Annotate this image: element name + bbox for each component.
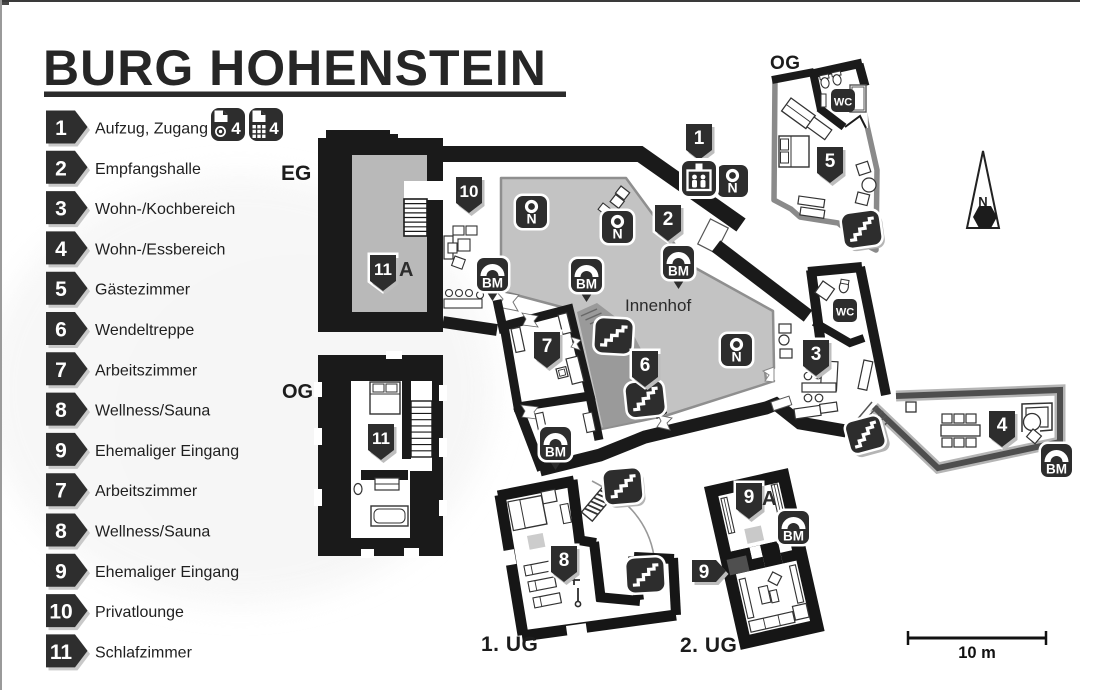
svg-text:4: 4 bbox=[55, 238, 67, 261]
svg-text:1: 1 bbox=[694, 128, 705, 149]
svg-text:4: 4 bbox=[269, 119, 279, 138]
svg-text:5: 5 bbox=[55, 278, 67, 301]
svg-text:A: A bbox=[762, 488, 776, 510]
svg-text:OG: OG bbox=[770, 53, 801, 74]
svg-text:Wellness/Sauna: Wellness/Sauna bbox=[95, 403, 210, 420]
svg-text:Privatlounge: Privatlounge bbox=[95, 604, 184, 621]
svg-text:6: 6 bbox=[640, 355, 651, 376]
svg-text:1. UG: 1. UG bbox=[481, 633, 538, 656]
svg-text:6: 6 bbox=[55, 319, 67, 342]
svg-text:Wohn-/Essbereich: Wohn-/Essbereich bbox=[95, 241, 225, 258]
svg-text:Schlafzimmer: Schlafzimmer bbox=[95, 644, 193, 661]
svg-text:Ehemaliger Eingang: Ehemaliger Eingang bbox=[95, 443, 239, 460]
svg-text:11: 11 bbox=[374, 260, 392, 279]
svg-text:Arbeitszimmer: Arbeitszimmer bbox=[95, 362, 198, 379]
svg-text:4: 4 bbox=[231, 119, 241, 138]
svg-text:4: 4 bbox=[997, 415, 1008, 436]
svg-text:1: 1 bbox=[55, 117, 67, 140]
svg-text:2: 2 bbox=[55, 157, 67, 180]
svg-text:Empfangshalle: Empfangshalle bbox=[95, 161, 201, 178]
svg-text:7: 7 bbox=[542, 336, 553, 357]
svg-text:8: 8 bbox=[559, 550, 570, 571]
svg-text:3: 3 bbox=[811, 344, 822, 365]
svg-text:11: 11 bbox=[50, 641, 73, 664]
svg-text:Aufzug, Zugang: Aufzug, Zugang bbox=[95, 121, 208, 138]
svg-text:A: A bbox=[399, 259, 413, 281]
svg-text:7: 7 bbox=[55, 480, 67, 503]
svg-text:Wohn-/Kochbereich: Wohn-/Kochbereich bbox=[95, 201, 235, 218]
svg-text:2: 2 bbox=[663, 209, 674, 230]
svg-text:8: 8 bbox=[55, 520, 67, 543]
svg-text:10: 10 bbox=[460, 182, 479, 201]
svg-text:5: 5 bbox=[825, 151, 836, 172]
svg-text:7: 7 bbox=[55, 359, 67, 382]
svg-text:9: 9 bbox=[55, 439, 67, 462]
svg-text:Innenhof: Innenhof bbox=[625, 296, 691, 315]
svg-text:Ehemaliger Eingang: Ehemaliger Eingang bbox=[95, 564, 239, 581]
svg-text:Wendeltreppe: Wendeltreppe bbox=[95, 322, 194, 339]
svg-text:11: 11 bbox=[372, 429, 390, 448]
svg-text:10: 10 bbox=[49, 601, 72, 624]
svg-text:Wellness/Sauna: Wellness/Sauna bbox=[95, 524, 210, 541]
svg-text:9: 9 bbox=[744, 487, 755, 508]
svg-text:OG: OG bbox=[282, 381, 313, 403]
svg-text:9: 9 bbox=[699, 562, 710, 583]
svg-text:8: 8 bbox=[55, 399, 67, 422]
svg-text:EG: EG bbox=[281, 162, 311, 185]
svg-text:Gästezimmer: Gästezimmer bbox=[95, 282, 191, 299]
svg-text:3: 3 bbox=[55, 198, 67, 221]
svg-text:BURG HOHENSTEIN: BURG HOHENSTEIN bbox=[43, 40, 547, 96]
svg-text:10 m: 10 m bbox=[958, 644, 996, 662]
svg-text:Arbeitszimmer: Arbeitszimmer bbox=[95, 483, 198, 500]
svg-text:9: 9 bbox=[55, 560, 67, 583]
svg-text:2. UG: 2. UG bbox=[680, 634, 737, 657]
